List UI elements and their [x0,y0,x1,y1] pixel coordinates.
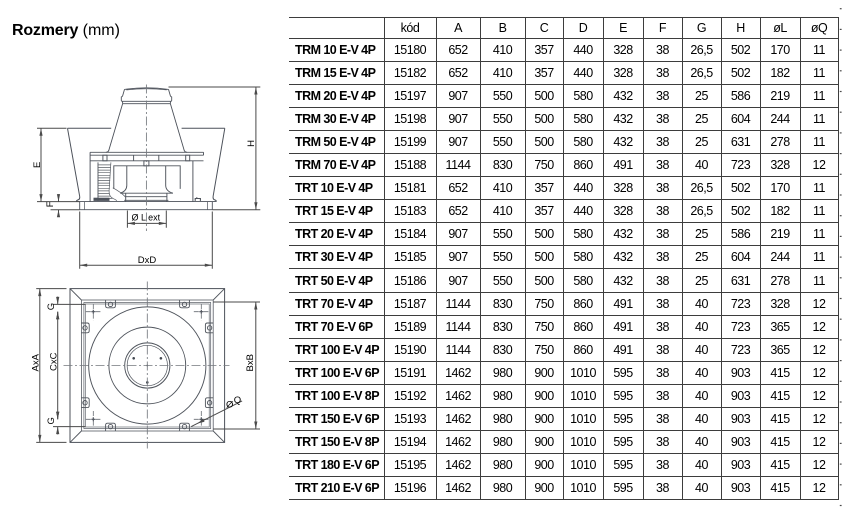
svg-text:Ø: Ø [226,400,234,411]
svg-text:F: F [45,201,56,207]
svg-text:E: E [32,162,43,168]
svg-text:H: H [246,140,257,147]
svg-text:AxA: AxA [31,353,42,371]
svg-text:BxB: BxB [245,354,256,371]
svg-text:DxD: DxD [138,255,157,266]
svg-text:CxC: CxC [49,352,60,371]
svg-text:Q: Q [234,395,241,406]
svg-text:G: G [46,417,57,424]
svg-text:G: G [46,303,57,310]
svg-text:Ø L ext: Ø L ext [132,212,161,222]
